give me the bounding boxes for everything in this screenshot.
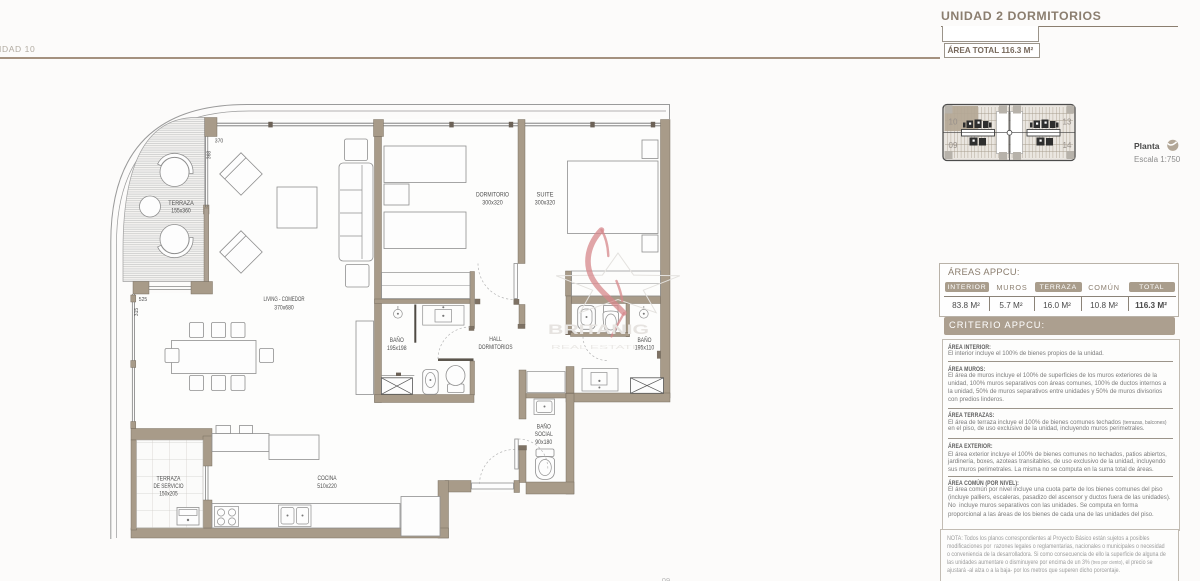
- svg-text:COCINA: COCINA: [318, 476, 337, 482]
- svg-text:370: 370: [215, 139, 224, 145]
- svg-text:HALL: HALL: [489, 337, 502, 343]
- svg-text:BAÑO: BAÑO: [638, 337, 652, 344]
- svg-text:10: 10: [949, 118, 958, 127]
- svg-text:300x320: 300x320: [535, 201, 556, 207]
- svg-text:195x198: 195x198: [387, 346, 407, 352]
- svg-text:SOCIAL: SOCIAL: [535, 432, 554, 438]
- svg-text:DE SERVICIO: DE SERVICIO: [154, 484, 184, 490]
- svg-text:315: 315: [134, 308, 140, 317]
- svg-text:TERRAZA: TERRAZA: [168, 201, 194, 207]
- svg-text:SUITE: SUITE: [537, 193, 554, 199]
- svg-text:90x180: 90x180: [535, 440, 553, 446]
- svg-text:BAÑO: BAÑO: [390, 337, 404, 344]
- svg-text:155x360: 155x360: [171, 209, 191, 215]
- svg-text:09: 09: [662, 576, 671, 581]
- svg-text:150x205: 150x205: [159, 492, 178, 498]
- svg-text:BAÑO: BAÑO: [537, 424, 551, 431]
- svg-text:REAL ESTATE: REAL ESTATE: [551, 345, 641, 351]
- svg-text:BRITANIG: BRITANIG: [548, 322, 649, 337]
- svg-text:14: 14: [1063, 141, 1072, 150]
- svg-text:LIVING - COMEDOR: LIVING - COMEDOR: [264, 297, 305, 303]
- svg-text:525: 525: [139, 297, 148, 303]
- svg-text:09: 09: [949, 141, 958, 150]
- svg-text:370x680: 370x680: [274, 306, 294, 312]
- svg-text:DORMITORIO: DORMITORIO: [476, 193, 509, 199]
- svg-text:13: 13: [1063, 118, 1072, 127]
- svg-text:DORMITORIOS: DORMITORIOS: [479, 345, 513, 351]
- svg-text:TERRAZA: TERRAZA: [157, 477, 181, 483]
- svg-text:300x320: 300x320: [482, 201, 503, 207]
- svg-text:195x110: 195x110: [635, 346, 655, 352]
- svg-text:368: 368: [207, 151, 213, 160]
- svg-text:510x220: 510x220: [317, 484, 337, 490]
